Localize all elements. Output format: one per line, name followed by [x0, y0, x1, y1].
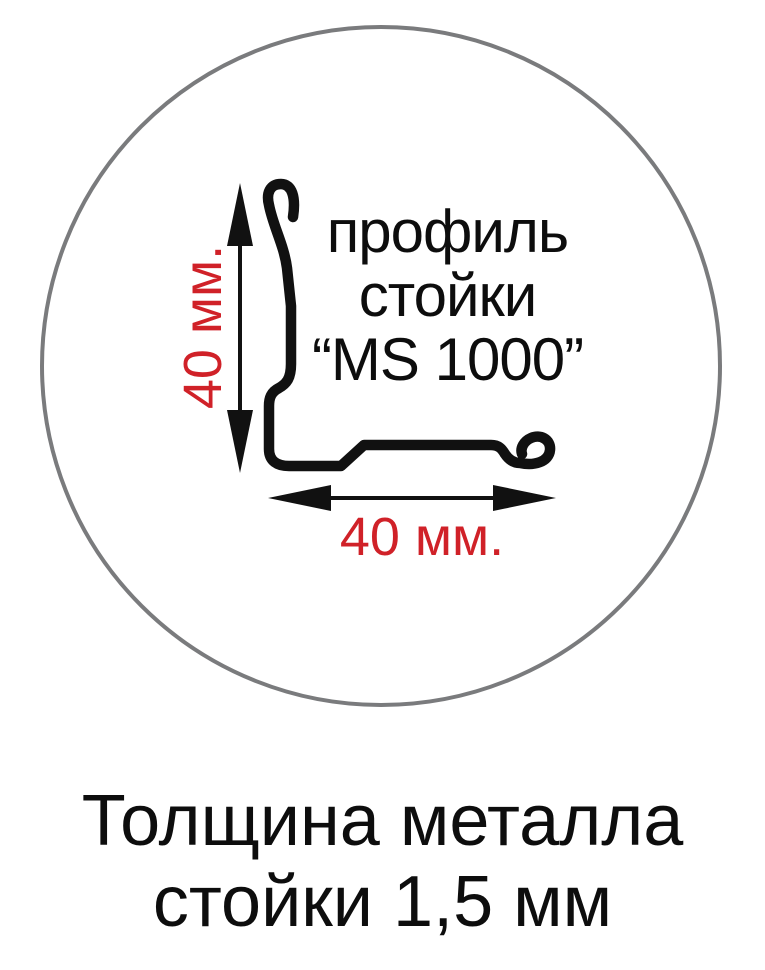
thickness-caption: Толщина металла стойки 1,5 мм [0, 781, 765, 943]
horizontal-dimension-label: 40 мм. [312, 508, 532, 566]
profile-name-line2: стойки [295, 264, 600, 328]
thickness-caption-line1: Толщина металла [0, 781, 765, 862]
profile-name-line3: “MS 1000” [295, 328, 600, 392]
profile-name-label: профиль стойки “MS 1000” [295, 200, 600, 392]
profile-name-line1: профиль [295, 200, 600, 264]
diagram-stage: профиль стойки “MS 1000” 40 мм. 40 мм. Т… [0, 0, 765, 970]
thickness-caption-line2: стойки 1,5 мм [0, 862, 765, 943]
vertical-dimension-label: 40 мм. [174, 217, 232, 437]
